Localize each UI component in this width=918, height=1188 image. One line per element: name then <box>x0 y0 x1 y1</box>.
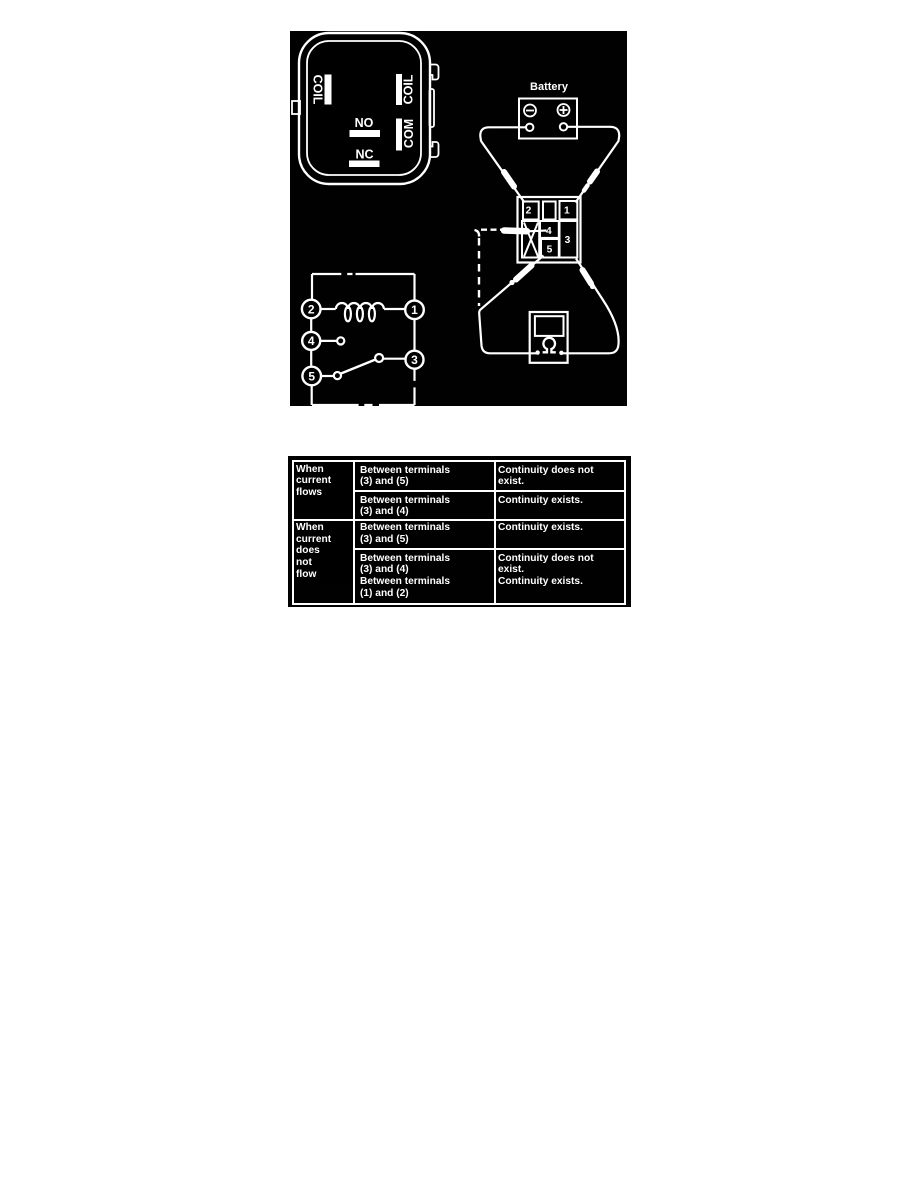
svg-text:4: 4 <box>308 334 315 348</box>
svg-text:COIL: COIL <box>401 74 415 104</box>
svg-text:NO: NO <box>355 116 374 130</box>
svg-text:1: 1 <box>411 303 418 317</box>
svg-text:Battery: Battery <box>530 81 569 93</box>
svg-text:3: 3 <box>565 235 571 246</box>
svg-text:5: 5 <box>547 245 553 256</box>
svg-text:2: 2 <box>526 206 532 217</box>
svg-text:NC: NC <box>355 148 373 162</box>
svg-text:COIL: COIL <box>311 75 325 105</box>
svg-text:4: 4 <box>546 226 552 237</box>
svg-text:1: 1 <box>564 206 570 217</box>
svg-text:5: 5 <box>308 369 315 383</box>
svg-text:2: 2 <box>308 302 315 316</box>
svg-text:COM: COM <box>402 119 416 148</box>
svg-text:3: 3 <box>411 353 418 367</box>
